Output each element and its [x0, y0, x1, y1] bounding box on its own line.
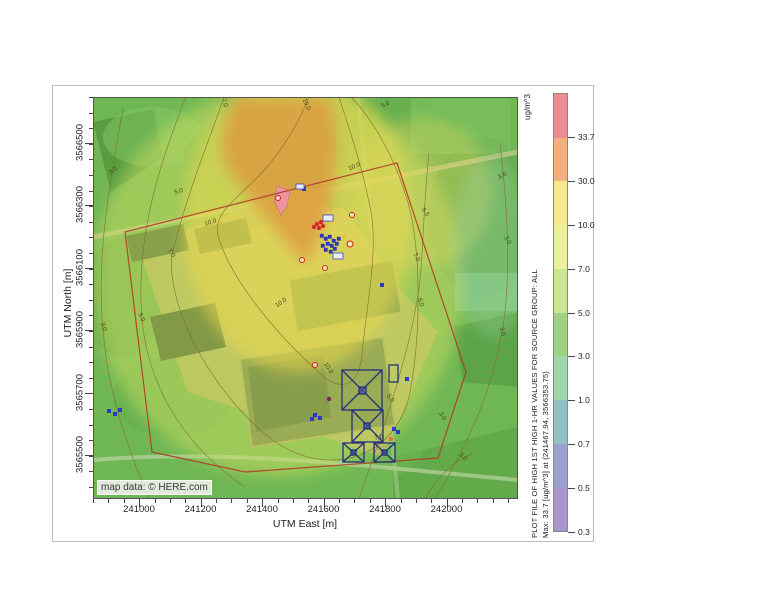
y-minor-tick: [89, 300, 93, 301]
map-attribution: map data: © HERE.com: [97, 480, 212, 495]
x-minor-tick: [247, 499, 248, 503]
colorbar-tick-label: 3.0: [578, 351, 590, 361]
colorbar-tick-label: 33.7: [578, 132, 595, 142]
y-minor-tick: [89, 222, 93, 223]
x-minor-tick: [93, 499, 94, 503]
plot-page: 10.010.010.010.010.07.07.07.07.05.05.05.…: [0, 0, 768, 593]
colorbar-segment: [554, 138, 567, 182]
x-tick-label: 241200: [185, 504, 217, 515]
y-major-tick: [85, 455, 93, 456]
y-minor-tick: [89, 97, 93, 98]
x-minor-tick: [293, 499, 294, 503]
colorbar-tick: [568, 356, 575, 357]
y-minor-tick: [89, 175, 93, 176]
x-tick-label: 241000: [123, 504, 155, 515]
x-minor-tick: [155, 499, 156, 503]
y-tick-label: 3565700: [75, 369, 86, 415]
y-minor-tick: [89, 315, 93, 316]
x-axis-title: UTM East [m]: [230, 518, 380, 530]
colorbar-segment: [554, 94, 567, 138]
colorbar-segment: [554, 181, 567, 225]
y-minor-tick: [89, 347, 93, 348]
x-tick-label: 241400: [246, 504, 278, 515]
y-tick-label: 3565500: [75, 432, 86, 478]
colorbar-segment: [554, 313, 567, 357]
x-minor-tick: [431, 499, 432, 503]
colorbar-tick: [568, 313, 575, 314]
x-minor-tick: [339, 499, 340, 503]
x-minor-tick: [477, 499, 478, 503]
y-tick-label: 3566500: [75, 120, 86, 166]
y-minor-tick: [89, 113, 93, 114]
colorbar-units-label: ug/m^3: [523, 80, 532, 120]
y-minor-tick: [89, 159, 93, 160]
colorbar-tick-label: 10.0: [578, 220, 595, 230]
colorbar-tick-label: 1.0: [578, 395, 590, 405]
y-minor-tick: [89, 471, 93, 472]
x-minor-tick: [108, 499, 109, 503]
x-tick-label: 242000: [431, 504, 463, 515]
map-area: 10.010.010.010.010.07.07.07.07.05.05.05.…: [93, 97, 518, 499]
colorbar-tick-label: 30.0: [578, 176, 595, 186]
x-minor-tick: [493, 499, 494, 503]
colorbar-tick: [568, 400, 575, 401]
x-minor-tick: [416, 499, 417, 503]
x-minor-tick: [231, 499, 232, 503]
y-minor-tick: [89, 409, 93, 410]
x-minor-tick: [216, 499, 217, 503]
colorbar-tick: [568, 532, 575, 533]
y-axis-title: UTM North [m]: [62, 233, 74, 373]
x-minor-tick: [124, 499, 125, 503]
y-tick-label: 3566100: [75, 244, 86, 290]
max-value-annotation: Max: 33.7 [ug/m^3] at (241467.94, 356635…: [541, 371, 550, 538]
x-minor-tick: [508, 499, 509, 503]
colorbar-segment: [554, 400, 567, 444]
y-minor-tick: [89, 237, 93, 238]
x-minor-tick: [354, 499, 355, 503]
x-minor-tick: [401, 499, 402, 503]
y-major-tick: [85, 393, 93, 394]
y-minor-tick: [89, 440, 93, 441]
y-minor-tick: [89, 425, 93, 426]
y-minor-tick: [89, 487, 93, 488]
y-minor-tick: [89, 128, 93, 129]
colorbar-segment: [554, 487, 567, 531]
colorbar-tick: [568, 444, 575, 445]
y-major-tick: [85, 143, 93, 144]
y-tick-label: 3565900: [75, 307, 86, 353]
colorbar-tick: [568, 181, 575, 182]
colorbar-tick-label: 7.0: [578, 264, 590, 274]
contour-map-svg: 10.010.010.010.010.07.07.07.07.05.05.05.…: [93, 97, 518, 499]
colorbar-tick: [568, 137, 575, 138]
x-minor-tick: [170, 499, 171, 503]
colorbar-segment: [554, 356, 567, 400]
y-minor-tick: [89, 191, 93, 192]
x-tick-label: 241800: [369, 504, 401, 515]
x-minor-tick: [462, 499, 463, 503]
colorbar-segment: [554, 269, 567, 313]
y-tick-label: 3566300: [75, 182, 86, 228]
colorbar-tick-label: 0.5: [578, 483, 590, 493]
plot-title: PLOT FILE OF HIGH 1ST HIGH 1-HR VALUES F…: [530, 269, 539, 538]
y-minor-tick: [89, 284, 93, 285]
colorbar-tick-label: 5.0: [578, 308, 590, 318]
colorbar-tick-label: 0.3: [578, 527, 590, 537]
colorbar: [553, 93, 568, 532]
colorbar-tick: [568, 488, 575, 489]
x-minor-tick: [308, 499, 309, 503]
y-minor-tick: [89, 378, 93, 379]
marker-purple: [327, 397, 331, 401]
marker-yellow: [342, 235, 345, 238]
x-minor-tick: [278, 499, 279, 503]
x-tick-label: 241600: [308, 504, 340, 515]
y-major-tick: [85, 268, 93, 269]
colorbar-tick: [568, 225, 575, 226]
colorbar-tick: [568, 269, 575, 270]
colorbar-segment: [554, 225, 567, 269]
y-major-tick: [85, 330, 93, 331]
x-minor-tick: [370, 499, 371, 503]
marker-orange: [389, 437, 393, 441]
x-minor-tick: [185, 499, 186, 503]
colorbar-segment: [554, 444, 567, 488]
y-major-tick: [85, 205, 93, 206]
colorbar-tick-label: 0.7: [578, 439, 590, 449]
y-minor-tick: [89, 362, 93, 363]
y-minor-tick: [89, 253, 93, 254]
